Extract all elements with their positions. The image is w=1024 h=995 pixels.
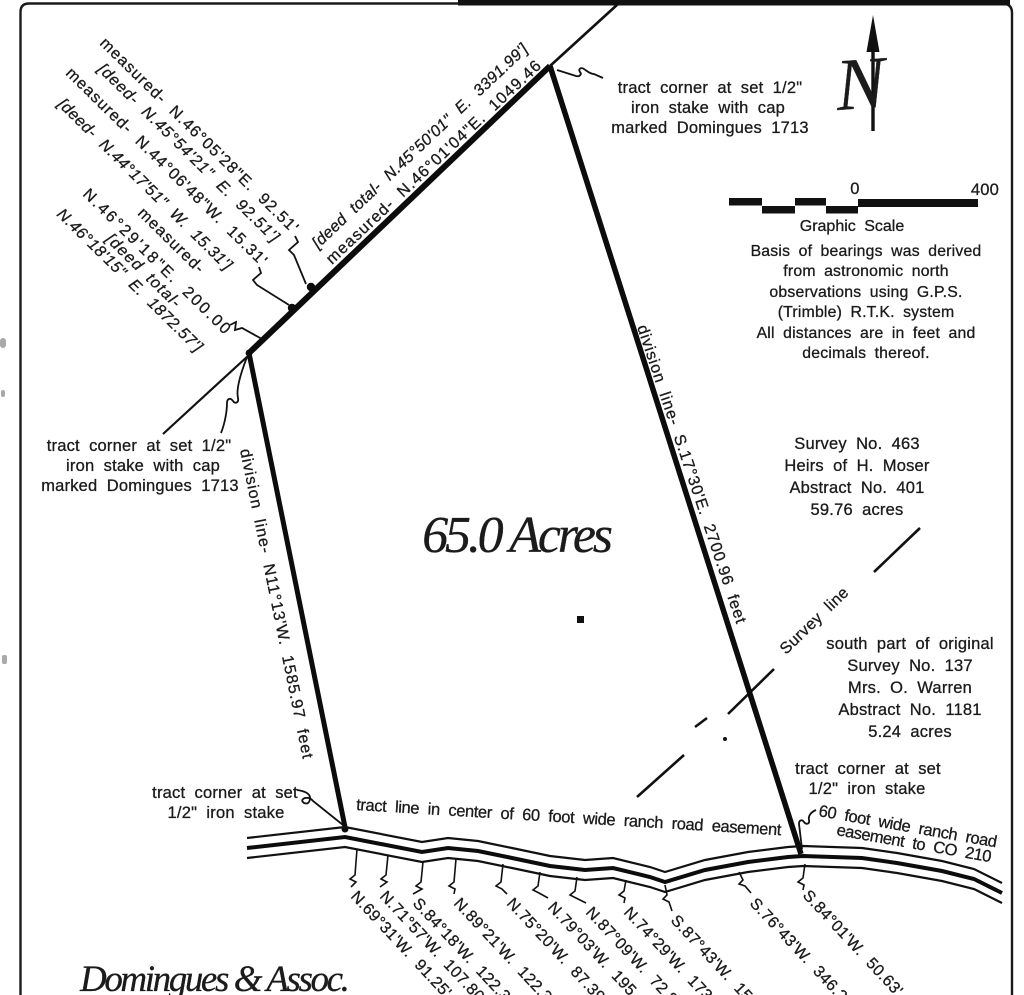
svg-text:marked Domingues 1713: marked Domingues 1713	[41, 477, 239, 495]
svg-text:iron stake with cap: iron stake with cap	[631, 99, 785, 117]
svg-text:Abstract No. 1181: Abstract No. 1181	[838, 701, 981, 719]
svg-text:tract corner at set: tract corner at set	[795, 760, 941, 778]
svg-text:tract corner at set 1/2": tract corner at set 1/2"	[618, 79, 803, 97]
svg-text:Graphic Scale: Graphic Scale	[800, 218, 905, 235]
svg-text:All distances are in feet and: All distances are in feet and	[757, 325, 976, 342]
svg-text:1/2" iron stake: 1/2" iron stake	[809, 780, 926, 798]
svg-text:Basis of bearings was derived: Basis of bearings was derived	[751, 243, 982, 260]
svg-text:decimals thereof.: decimals thereof.	[802, 345, 930, 362]
svg-text:Domingues & Assoc.: Domingues & Assoc.	[79, 959, 348, 995]
svg-text:N: N	[832, 41, 892, 127]
svg-text:0: 0	[850, 180, 859, 198]
svg-text:1/2" iron stake: 1/2" iron stake	[168, 804, 285, 822]
svg-text:Survey No. 137: Survey No. 137	[847, 657, 973, 675]
svg-text:observations using G.P.S.: observations using G.P.S.	[769, 284, 962, 301]
svg-text:65.0 Acres: 65.0 Acres	[422, 507, 611, 564]
svg-text:(Trimble) R.T.K. system: (Trimble) R.T.K. system	[778, 304, 955, 321]
svg-text:from astronomic north: from astronomic north	[783, 263, 948, 280]
svg-text:Heirs of H. Moser: Heirs of H. Moser	[784, 457, 930, 475]
svg-text:Mrs. O. Warren: Mrs. O. Warren	[848, 679, 972, 697]
svg-text:59.76 acres: 59.76 acres	[811, 501, 904, 519]
svg-text:tract corner at set 1/2": tract corner at set 1/2"	[47, 437, 232, 455]
svg-text:marked Domingues 1713: marked Domingues 1713	[611, 119, 809, 137]
svg-text:south part of original: south part of original	[826, 635, 993, 653]
svg-text:Survey No. 463: Survey No. 463	[794, 435, 920, 453]
svg-text:5.24 acres: 5.24 acres	[868, 723, 952, 741]
svg-text:tract corner at set: tract corner at set	[152, 784, 298, 802]
svg-text:400: 400	[971, 181, 999, 199]
svg-text:iron stake with cap: iron stake with cap	[66, 457, 220, 475]
svg-text:Abstract No. 401: Abstract No. 401	[789, 479, 924, 497]
